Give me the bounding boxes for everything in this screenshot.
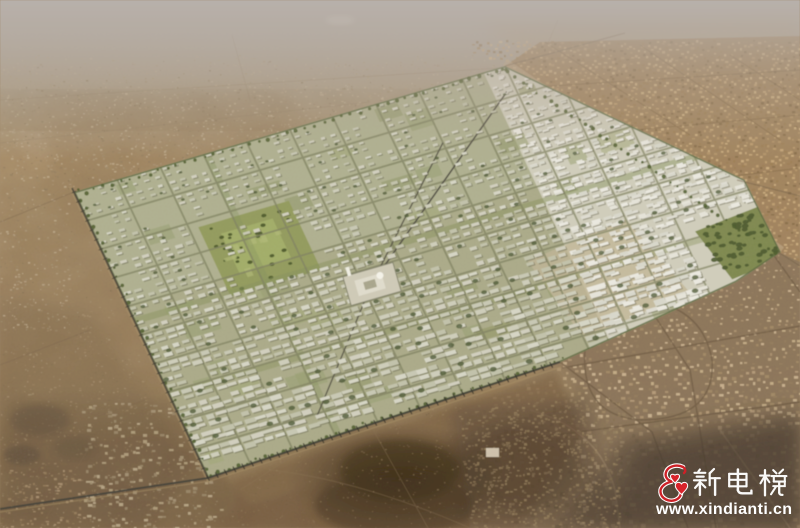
svg-text:www.xindianti.cn: www.xindianti.cn xyxy=(655,501,793,518)
